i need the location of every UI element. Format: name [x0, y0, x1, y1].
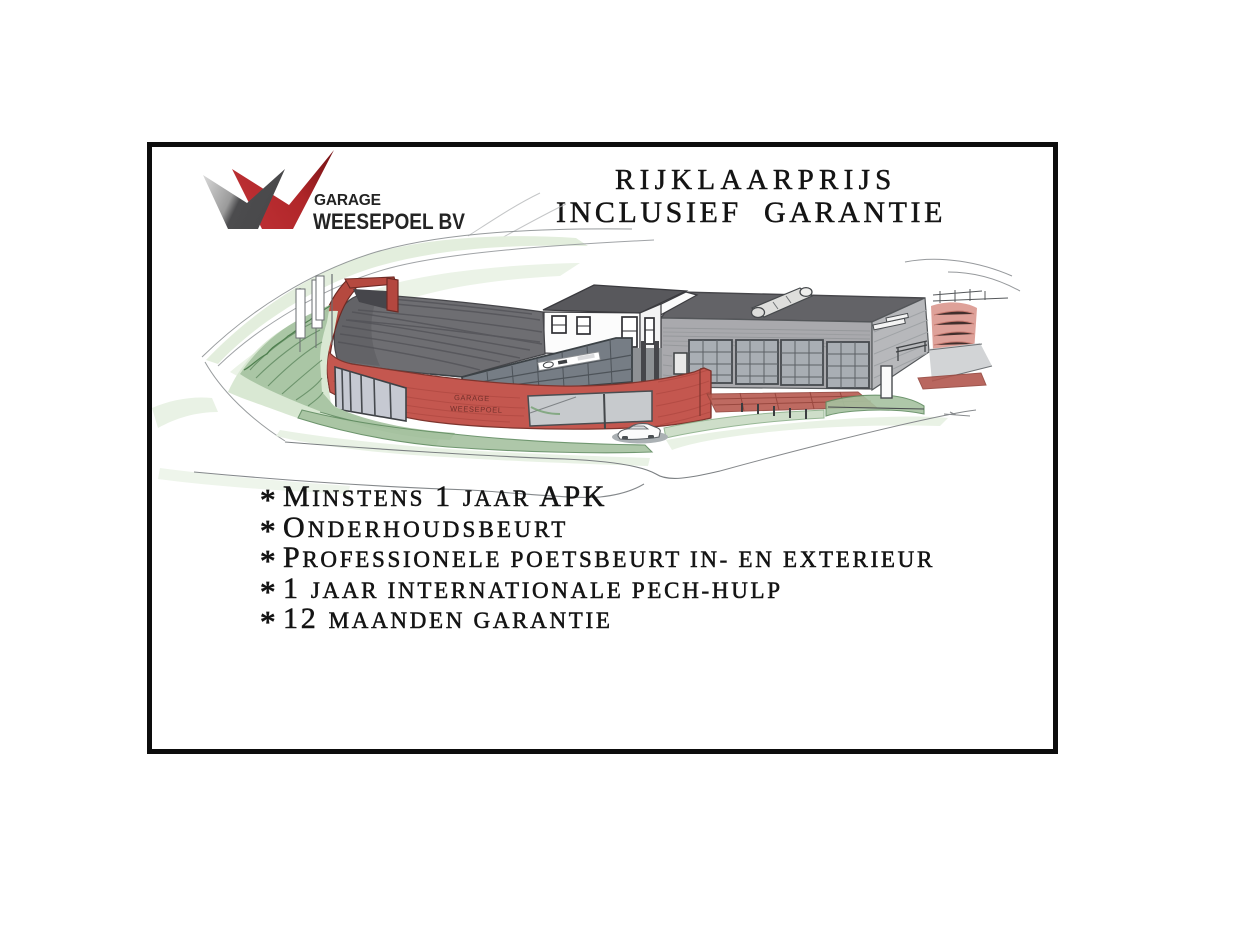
svg-text:GARAGE: GARAGE	[454, 393, 490, 403]
svg-text:WEESEPOEL: WEESEPOEL	[450, 404, 503, 415]
